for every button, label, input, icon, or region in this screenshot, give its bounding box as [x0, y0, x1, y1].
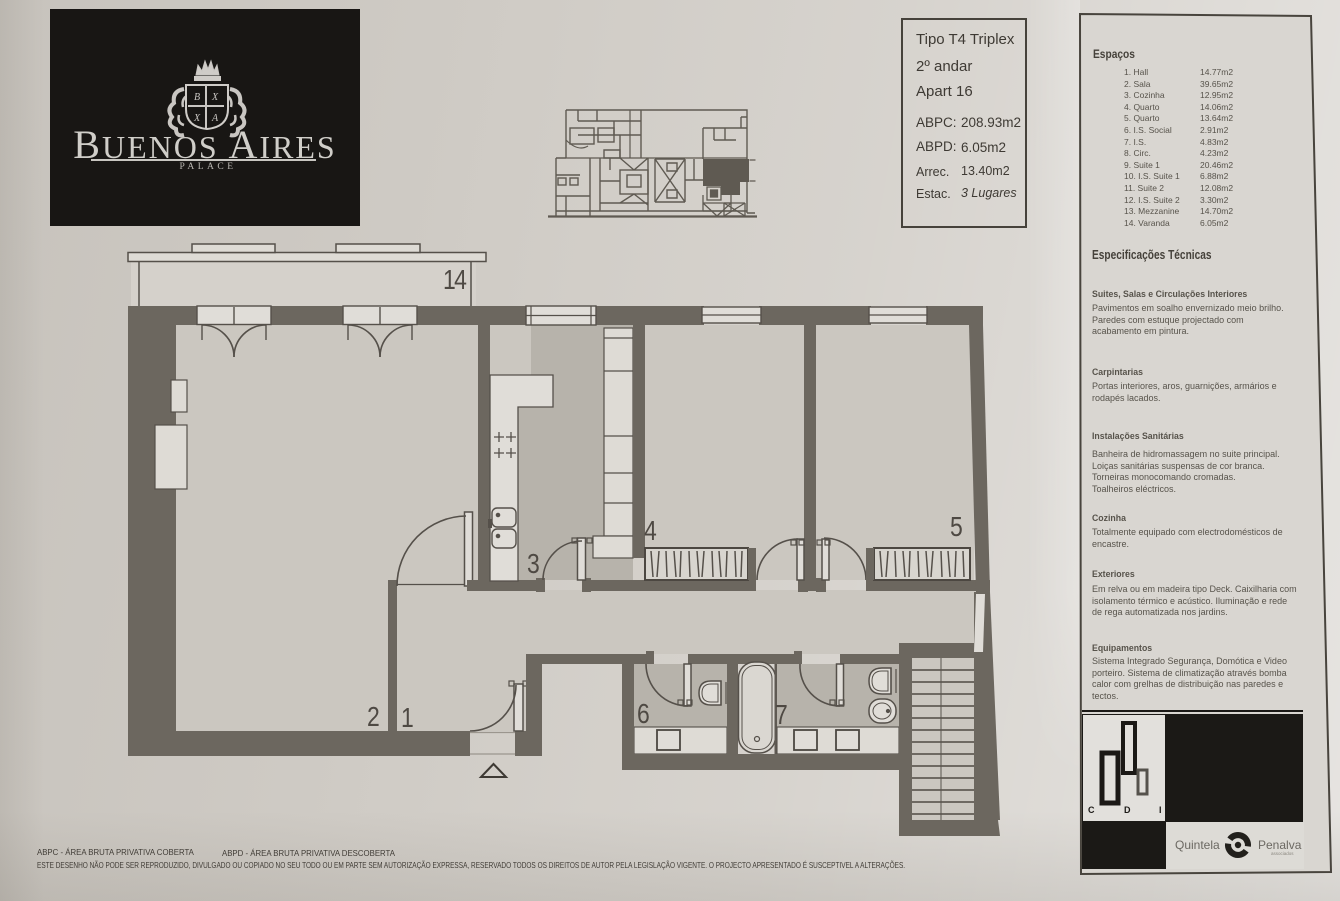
svg-text:4: 4	[644, 516, 657, 547]
svg-text:C: C	[1088, 805, 1095, 815]
svg-text:3: 3	[527, 549, 540, 580]
svg-text:1: 1	[401, 703, 414, 734]
svg-text:associados: associados	[1271, 851, 1294, 856]
svg-text:2: 2	[367, 702, 380, 733]
svg-text:Penalva: Penalva	[1258, 838, 1302, 852]
svg-text:Quintela: Quintela	[1175, 838, 1220, 852]
svg-text:D: D	[1124, 805, 1131, 815]
svg-text:14: 14	[443, 265, 467, 296]
svg-text:I: I	[1159, 805, 1162, 815]
svg-text:5: 5	[950, 512, 963, 543]
svg-text:7: 7	[775, 700, 788, 731]
svg-text:6: 6	[637, 699, 650, 730]
